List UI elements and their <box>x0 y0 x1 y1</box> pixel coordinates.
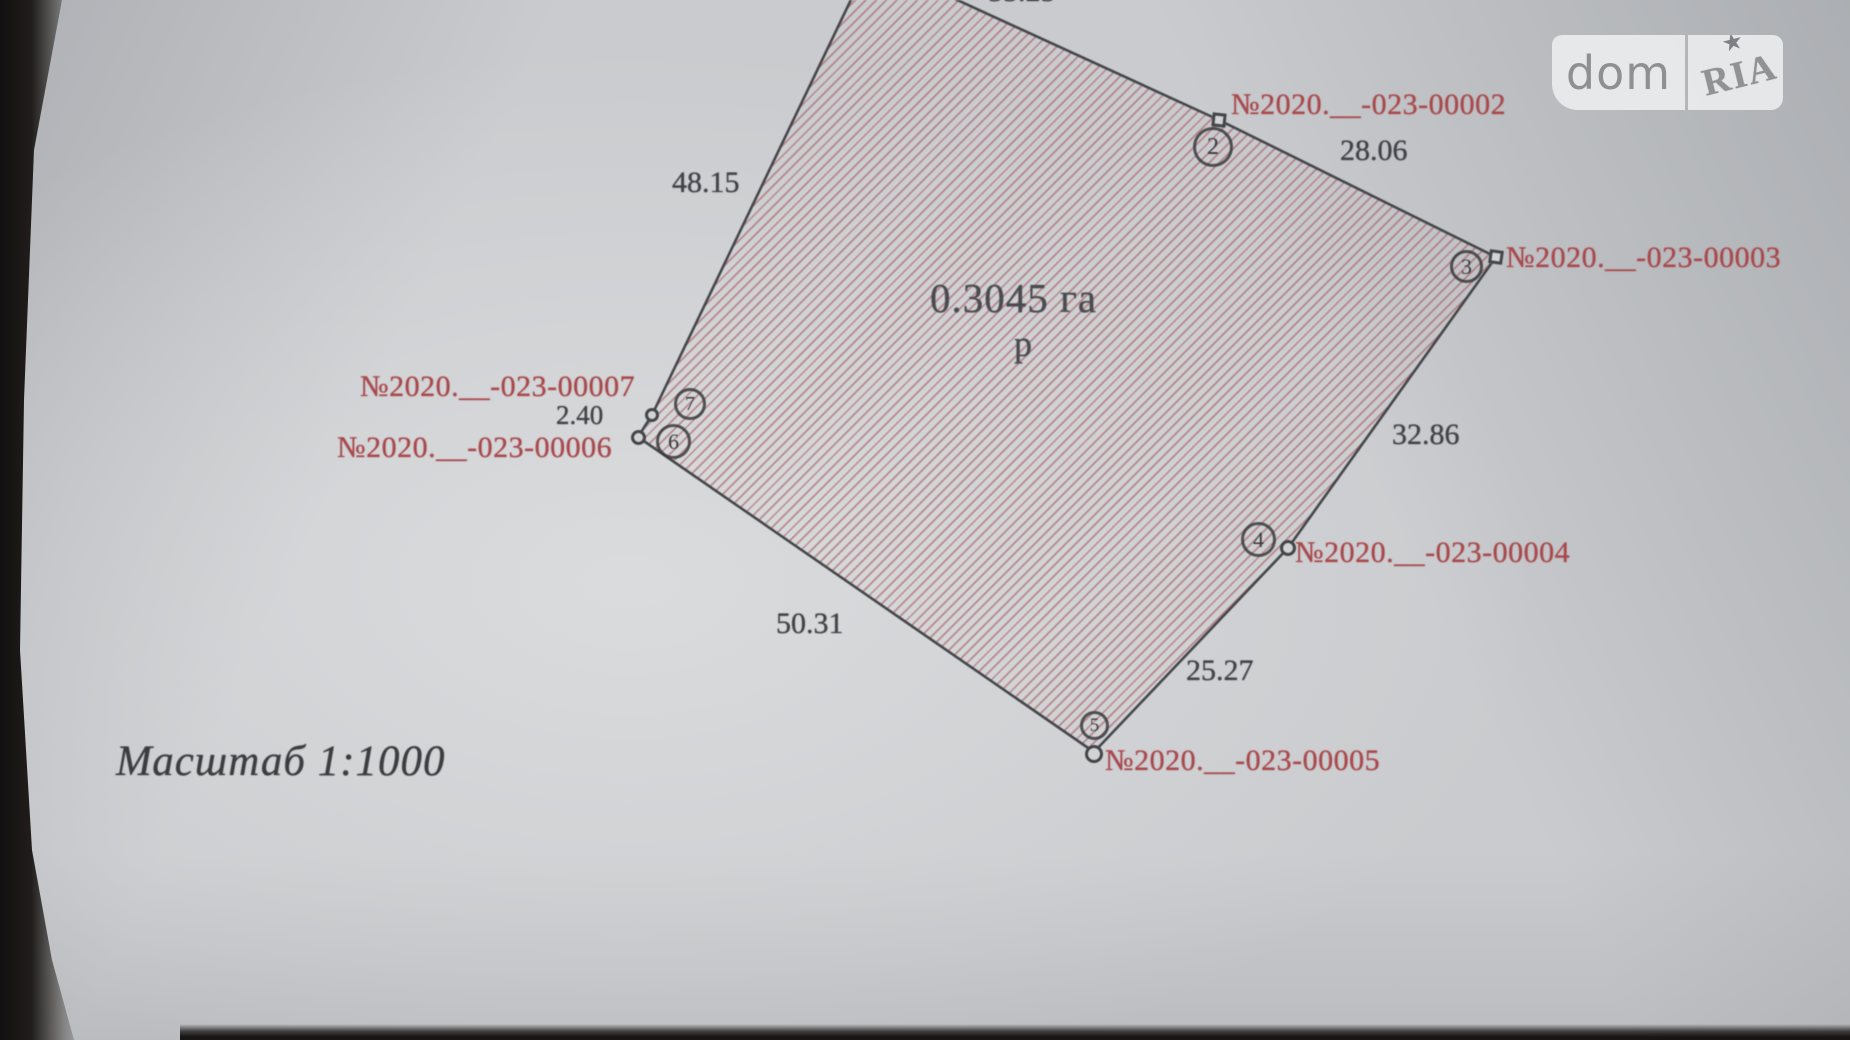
vertex-7-label: 7 <box>674 388 706 420</box>
vertex-6-label: 6 <box>656 424 691 459</box>
dom-ria-watermark: dom ★ RIA <box>1552 35 1783 110</box>
vertex-3-number: 3 <box>1461 254 1472 280</box>
vertex-6-point-marker <box>631 430 646 445</box>
vertex-6-number: 6 <box>668 429 679 455</box>
parcel-number-label-4: №2020.__-023-00004 <box>1295 538 1570 568</box>
vertex-4-number: 4 <box>1253 527 1264 553</box>
photographed-cadastral-plan: 2 3 4 5 6 7 55.25 28.06 32.86 25.27 50.3… <box>0 0 1850 1040</box>
scale-label: Масштаб 1:1000 <box>116 740 446 783</box>
ria-logo-tile: ★ RIA <box>1688 35 1783 110</box>
vertex-5-label: 5 <box>1080 711 1109 740</box>
vertex-7-number: 7 <box>685 393 695 416</box>
vertex-2-label: 2 <box>1193 127 1233 167</box>
plan-diagram-layer: 2 3 4 5 6 7 55.25 28.06 32.86 25.27 50.3… <box>0 0 1850 1040</box>
plot-area-label: 0.3045 га <box>930 278 1097 319</box>
dimension-label-7-1: 48.15 <box>672 168 740 198</box>
dimension-label-2-3: 28.06 <box>1340 136 1408 166</box>
vertex-3-point-marker <box>1488 249 1504 265</box>
parcel-number-label-3: №2020.__-023-00003 <box>1506 243 1781 273</box>
plot-area-sub-label: р <box>1014 326 1032 362</box>
dimension-label-4-5: 25.27 <box>1186 656 1254 686</box>
vertex-5-number: 5 <box>1090 715 1100 737</box>
parcel-number-label-7: №2020.__-023-00007 <box>360 372 635 402</box>
dimension-label-3-4: 32.86 <box>1392 420 1460 450</box>
parcel-number-label-5: №2020.__-023-00005 <box>1105 746 1380 776</box>
dimension-label-6-7: 2.40 <box>556 402 603 429</box>
vertex-2-number: 2 <box>1207 134 1219 161</box>
ria-logo-text: RIA <box>1698 44 1782 105</box>
parcel-number-label-6: №2020.__-023-00006 <box>337 433 612 463</box>
dom-logo-tile: dom <box>1552 35 1685 110</box>
dimension-label-5-6: 50.31 <box>776 609 844 639</box>
vertex-7-point-marker <box>645 408 659 422</box>
plot-boundary-outline <box>0 0 1850 1040</box>
vertex-3-label: 3 <box>1450 250 1483 283</box>
vertex-2-point-marker <box>1211 112 1226 127</box>
photo-bottom-dark-edge <box>180 1024 1850 1040</box>
dimension-label-1-2: 55.25 <box>988 0 1056 7</box>
vertex-5-point-marker <box>1085 745 1103 763</box>
dom-logo-text: dom <box>1566 46 1671 100</box>
vertex-4-point-marker <box>1280 540 1296 556</box>
parcel-number-label-2: №2020.__-023-00002 <box>1231 90 1506 120</box>
vertex-4-label: 4 <box>1241 522 1276 557</box>
